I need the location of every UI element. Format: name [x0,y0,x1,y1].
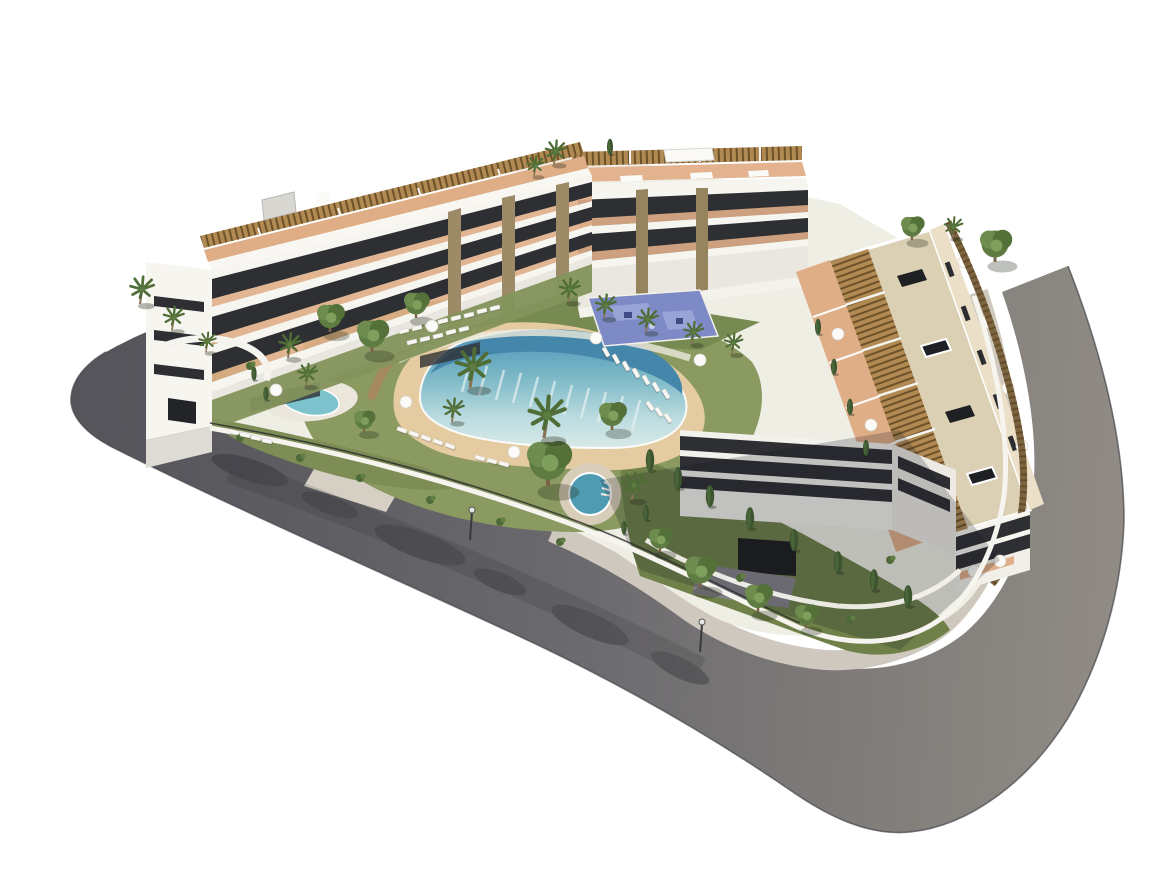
parasol [865,419,877,431]
playground-equipment [676,318,683,324]
parasol [590,332,602,344]
playground-equipment [624,312,632,318]
rear-roof-canopy [690,172,713,179]
parasol [694,354,706,366]
rear-roof-canopy [748,170,769,177]
stone-pier [696,188,708,292]
parasol [270,384,282,396]
gable-entrance [168,398,196,424]
leafy-tree [980,230,1018,273]
parasol [832,328,844,340]
parasol [508,446,520,458]
render-canvas [0,0,1165,880]
rear-roof-box [664,148,714,162]
stone-pier [636,189,648,300]
rear-roof-canopy [620,175,643,182]
left-roof-box [316,191,331,204]
parasol [426,320,438,332]
parasol [400,396,412,408]
